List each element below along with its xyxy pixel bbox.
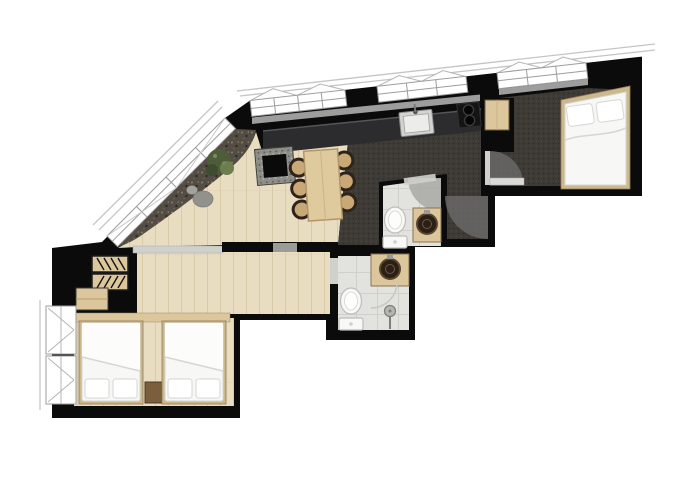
glass-door-sill [133,246,223,253]
entry-wood-floor [137,252,330,314]
stone [187,186,198,195]
pillow [168,379,192,398]
toilet [383,207,407,248]
side-table [76,288,108,310]
toilet [339,288,363,330]
pillow [85,379,109,398]
burner-icon [463,104,474,115]
washbasin [380,259,400,279]
bed-1 [79,321,143,404]
washbasin [417,214,437,234]
door-leaf [490,178,524,185]
cooktop [457,102,481,128]
pillow [596,99,625,122]
nightstand [145,382,162,403]
pillow [566,103,595,126]
faucet-icon [387,255,393,259]
dining-set [289,148,357,222]
bed-2 [162,321,226,404]
pillow [113,379,137,398]
pillow [196,379,220,398]
burner-icon [464,115,475,126]
stone [193,191,213,207]
door-sill [485,151,490,185]
door-sill [330,258,338,284]
entry-doorway [273,243,297,252]
floorplan-page [0,0,700,500]
faucet-icon [424,210,430,214]
floorplan-image [0,0,700,500]
